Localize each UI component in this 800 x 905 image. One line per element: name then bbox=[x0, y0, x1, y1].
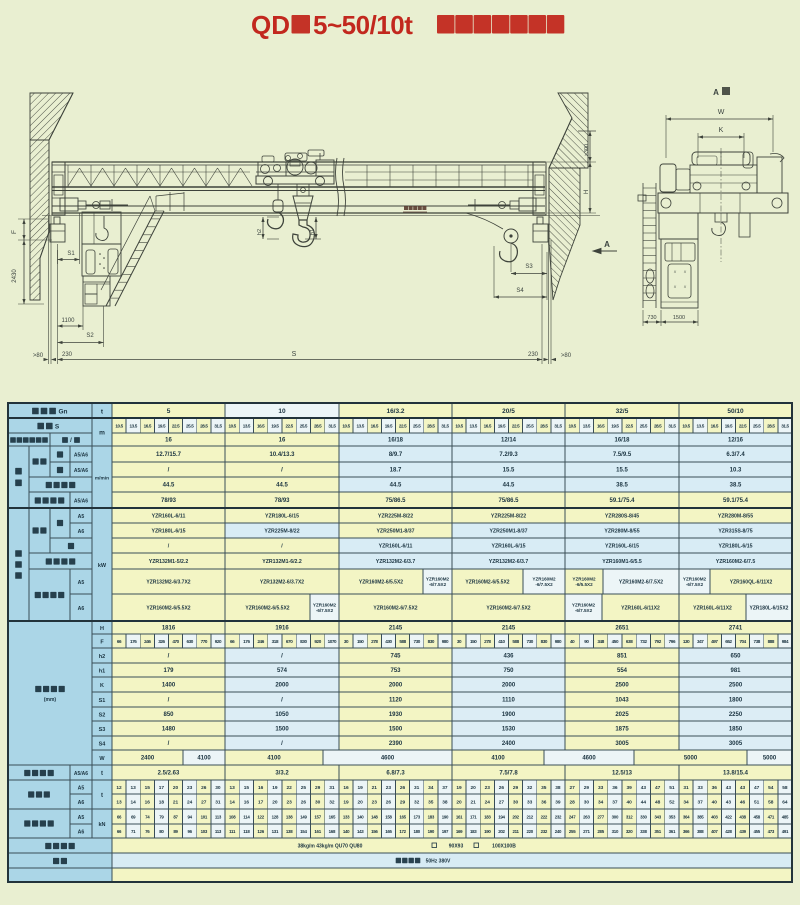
svg-text:172: 172 bbox=[399, 829, 406, 834]
svg-text:19.5: 19.5 bbox=[611, 424, 619, 429]
svg-text:2500: 2500 bbox=[615, 683, 629, 689]
svg-text:588: 588 bbox=[399, 639, 406, 644]
svg-text:58: 58 bbox=[768, 800, 774, 806]
svg-text:22.5: 22.5 bbox=[625, 424, 633, 429]
svg-text:131: 131 bbox=[272, 829, 279, 834]
svg-text:1500: 1500 bbox=[275, 727, 289, 733]
svg-text:118: 118 bbox=[243, 829, 250, 834]
svg-text:44.5: 44.5 bbox=[390, 483, 402, 489]
svg-text:138: 138 bbox=[286, 829, 293, 834]
svg-text:YZR280M-8/55: YZR280M-8/55 bbox=[604, 528, 639, 534]
svg-text:20: 20 bbox=[272, 800, 278, 806]
svg-text:738: 738 bbox=[753, 639, 760, 644]
svg-text:183: 183 bbox=[470, 829, 477, 834]
svg-text:-6/7.5X2: -6/7.5X2 bbox=[535, 582, 553, 587]
svg-text:27: 27 bbox=[499, 800, 505, 806]
svg-text:h2: h2 bbox=[257, 229, 263, 235]
svg-text:745: 745 bbox=[390, 654, 401, 660]
svg-text:100X100B: 100X100B bbox=[492, 844, 516, 850]
svg-text:122: 122 bbox=[257, 815, 264, 820]
svg-text:26: 26 bbox=[386, 800, 392, 806]
svg-text:183: 183 bbox=[484, 815, 491, 820]
svg-text:2390: 2390 bbox=[389, 741, 403, 747]
svg-text:44.5: 44.5 bbox=[163, 483, 175, 489]
svg-text:17: 17 bbox=[159, 785, 165, 791]
svg-text:7.5/9.5: 7.5/9.5 bbox=[613, 452, 632, 458]
svg-text:348: 348 bbox=[597, 639, 604, 644]
svg-text:31.5: 31.5 bbox=[441, 424, 449, 429]
svg-text:165: 165 bbox=[399, 815, 406, 820]
svg-text:YZR132M1-6/2.2: YZR132M1-6/2.2 bbox=[262, 559, 302, 565]
svg-text:113: 113 bbox=[215, 815, 222, 820]
svg-text:1043: 1043 bbox=[615, 698, 629, 704]
svg-text:326: 326 bbox=[158, 639, 165, 644]
svg-text:48: 48 bbox=[655, 800, 661, 806]
svg-text:25.5: 25.5 bbox=[300, 424, 308, 429]
svg-text:16.5: 16.5 bbox=[597, 424, 605, 429]
svg-text:21: 21 bbox=[173, 800, 179, 806]
svg-text:154: 154 bbox=[300, 829, 307, 834]
svg-text:59.1/75.4: 59.1/75.4 bbox=[723, 498, 749, 504]
svg-text:19: 19 bbox=[358, 785, 364, 791]
svg-text:30: 30 bbox=[315, 800, 321, 806]
svg-text:320: 320 bbox=[626, 829, 633, 834]
svg-text:7.5/7.8: 7.5/7.8 bbox=[499, 771, 518, 777]
svg-text:168: 168 bbox=[329, 829, 336, 834]
svg-text:16: 16 bbox=[165, 438, 172, 444]
svg-text:16: 16 bbox=[279, 438, 286, 444]
svg-text:25.5: 25.5 bbox=[753, 424, 761, 429]
svg-text:1070: 1070 bbox=[328, 639, 337, 644]
svg-text:32: 32 bbox=[414, 800, 420, 806]
svg-text:36: 36 bbox=[712, 785, 718, 791]
svg-text:202: 202 bbox=[498, 829, 505, 834]
svg-text:YZR160M2-6/7.5X2: YZR160M2-6/7.5X2 bbox=[619, 579, 663, 585]
svg-text:246: 246 bbox=[257, 639, 264, 644]
svg-text:232: 232 bbox=[555, 815, 562, 820]
svg-text:31.5: 31.5 bbox=[214, 424, 222, 429]
svg-text:A6: A6 bbox=[78, 800, 85, 806]
svg-text:A6: A6 bbox=[78, 606, 85, 612]
svg-text:7.2/9.3: 7.2/9.3 bbox=[499, 452, 518, 458]
svg-text:16.5: 16.5 bbox=[711, 424, 719, 429]
svg-text:1100: 1100 bbox=[62, 318, 76, 324]
svg-text:YZR160M2: YZR160M2 bbox=[572, 603, 596, 608]
svg-text:750: 750 bbox=[503, 668, 514, 674]
svg-text:1900: 1900 bbox=[502, 712, 516, 718]
svg-text:A5/A6: A5/A6 bbox=[74, 499, 88, 505]
svg-text:202: 202 bbox=[512, 815, 519, 820]
svg-text:31: 31 bbox=[414, 785, 420, 791]
svg-text:A5/A6: A5/A6 bbox=[74, 453, 88, 459]
svg-text:28.5: 28.5 bbox=[314, 424, 322, 429]
svg-text:351: 351 bbox=[654, 829, 661, 834]
svg-text:796: 796 bbox=[669, 639, 676, 644]
svg-text:S1: S1 bbox=[67, 251, 75, 257]
svg-text:19.5: 19.5 bbox=[158, 424, 166, 429]
svg-text:YZR225M-8/22: YZR225M-8/22 bbox=[264, 528, 299, 534]
svg-text:574: 574 bbox=[277, 668, 288, 674]
svg-text:730: 730 bbox=[526, 639, 533, 644]
svg-text:1400: 1400 bbox=[162, 683, 176, 689]
svg-text:1480: 1480 bbox=[162, 727, 176, 733]
svg-text:YZR160M1-6/5.5: YZR160M1-6/5.5 bbox=[602, 559, 642, 565]
svg-text:148: 148 bbox=[371, 815, 378, 820]
svg-text:m: m bbox=[99, 430, 105, 437]
svg-text:8/9.7: 8/9.7 bbox=[389, 452, 403, 458]
svg-text:K: K bbox=[719, 127, 724, 134]
svg-text:1916: 1916 bbox=[275, 626, 289, 632]
svg-text:103: 103 bbox=[201, 829, 208, 834]
svg-text:6.8/7.3: 6.8/7.3 bbox=[386, 771, 405, 777]
svg-text:173: 173 bbox=[413, 815, 420, 820]
svg-text:22.5: 22.5 bbox=[512, 424, 520, 429]
svg-text:S2: S2 bbox=[86, 333, 94, 339]
svg-text:16.5: 16.5 bbox=[371, 424, 379, 429]
svg-text:19.5: 19.5 bbox=[385, 424, 393, 429]
svg-text:31.5: 31.5 bbox=[781, 424, 789, 429]
svg-text:30: 30 bbox=[513, 800, 519, 806]
svg-text:YZR160M2: YZR160M2 bbox=[313, 603, 337, 608]
svg-text:33: 33 bbox=[698, 785, 704, 791]
svg-text:1120: 1120 bbox=[389, 698, 403, 704]
svg-text:23: 23 bbox=[485, 785, 491, 791]
svg-text:-6/7.5X2: -6/7.5X2 bbox=[429, 582, 447, 587]
svg-text:1500: 1500 bbox=[389, 727, 403, 733]
svg-text:YZR132M2-6/3.7: YZR132M2-6/3.7 bbox=[376, 559, 416, 565]
svg-text:108: 108 bbox=[229, 815, 236, 820]
svg-text:176: 176 bbox=[243, 639, 250, 644]
svg-text:16.5: 16.5 bbox=[144, 424, 152, 429]
svg-text:-6/7.5X2: -6/7.5X2 bbox=[575, 608, 593, 613]
svg-text:158: 158 bbox=[385, 815, 392, 820]
svg-text:A5/A6: A5/A6 bbox=[74, 771, 88, 777]
svg-text:19: 19 bbox=[343, 800, 349, 806]
svg-text:16/18: 16/18 bbox=[614, 438, 630, 444]
svg-text:22.5: 22.5 bbox=[399, 424, 407, 429]
svg-text:28: 28 bbox=[569, 800, 575, 806]
svg-text:kW: kW bbox=[98, 563, 107, 569]
svg-text:YZR225M-8/22: YZR225M-8/22 bbox=[491, 513, 526, 519]
svg-text:770: 770 bbox=[201, 639, 208, 644]
svg-text:10.5: 10.5 bbox=[342, 424, 350, 429]
svg-text:920: 920 bbox=[215, 639, 222, 644]
svg-text:31.5: 31.5 bbox=[668, 424, 676, 429]
svg-text:14: 14 bbox=[229, 800, 235, 806]
svg-text:10.4/13.3: 10.4/13.3 bbox=[269, 452, 295, 458]
svg-text:YZR160M2-6/7.5: YZR160M2-6/7.5 bbox=[716, 559, 756, 565]
svg-text:29: 29 bbox=[400, 800, 406, 806]
svg-text:25.5: 25.5 bbox=[413, 424, 421, 429]
svg-text:43: 43 bbox=[740, 785, 746, 791]
svg-text:34: 34 bbox=[598, 800, 604, 806]
svg-text:2025: 2025 bbox=[615, 712, 629, 718]
svg-text:43: 43 bbox=[641, 785, 647, 791]
svg-text:47: 47 bbox=[655, 785, 661, 791]
svg-text:31: 31 bbox=[215, 800, 221, 806]
svg-text:20/5: 20/5 bbox=[502, 408, 515, 415]
svg-text:38.5: 38.5 bbox=[616, 483, 628, 489]
svg-text:QD: QD bbox=[251, 10, 290, 40]
svg-text:114: 114 bbox=[243, 815, 250, 820]
svg-text:A6: A6 bbox=[78, 529, 85, 535]
svg-text:31.5: 31.5 bbox=[328, 424, 336, 429]
svg-text:≥300: ≥300 bbox=[584, 144, 590, 156]
svg-text:220: 220 bbox=[526, 829, 533, 834]
svg-text:130: 130 bbox=[683, 639, 690, 644]
svg-text:10.5: 10.5 bbox=[115, 424, 123, 429]
svg-text:16: 16 bbox=[145, 800, 151, 806]
svg-text:4100: 4100 bbox=[197, 756, 211, 762]
svg-text:YZR160M2: YZR160M2 bbox=[532, 577, 556, 582]
svg-text:5~50/10t: 5~50/10t bbox=[313, 10, 413, 40]
svg-text:730: 730 bbox=[647, 315, 656, 321]
svg-text:111: 111 bbox=[229, 829, 236, 834]
svg-text:YZR132M2-6/3.7X2: YZR132M2-6/3.7X2 bbox=[260, 579, 304, 585]
svg-text:13.5: 13.5 bbox=[697, 424, 705, 429]
svg-text:YZR225M-8/22: YZR225M-8/22 bbox=[378, 513, 413, 519]
svg-text:YZR160M2-6/7.5X2: YZR160M2-6/7.5X2 bbox=[373, 605, 417, 611]
svg-text:353: 353 bbox=[669, 815, 676, 820]
svg-text:26: 26 bbox=[301, 800, 307, 806]
svg-text:4600: 4600 bbox=[381, 756, 395, 762]
svg-text:22.5: 22.5 bbox=[739, 424, 747, 429]
svg-text:YZR132M1-5/2.2: YZR132M1-5/2.2 bbox=[149, 559, 189, 565]
svg-text:40: 40 bbox=[626, 800, 632, 806]
svg-text:3/3.2: 3/3.2 bbox=[275, 771, 289, 777]
svg-text:2400: 2400 bbox=[502, 741, 516, 747]
svg-text:35: 35 bbox=[428, 800, 434, 806]
svg-text:>80: >80 bbox=[33, 353, 44, 359]
svg-text:211: 211 bbox=[512, 829, 519, 834]
svg-text:2000: 2000 bbox=[275, 683, 289, 689]
svg-text:10.5: 10.5 bbox=[682, 424, 690, 429]
svg-text:388: 388 bbox=[697, 829, 704, 834]
svg-text:190: 190 bbox=[442, 815, 449, 820]
svg-text:18.7: 18.7 bbox=[390, 468, 402, 474]
svg-text:16.5: 16.5 bbox=[257, 424, 265, 429]
svg-text:13.5: 13.5 bbox=[357, 424, 365, 429]
svg-text:YZR160M2-6/7.5X2: YZR160M2-6/7.5X2 bbox=[486, 605, 530, 611]
svg-text:kN: kN bbox=[98, 822, 105, 828]
svg-text:A5/A6: A5/A6 bbox=[74, 468, 88, 474]
svg-text:171: 171 bbox=[470, 815, 477, 820]
svg-text:161: 161 bbox=[456, 815, 463, 820]
svg-text:23: 23 bbox=[286, 800, 292, 806]
svg-text:157: 157 bbox=[314, 815, 321, 820]
svg-text:113: 113 bbox=[215, 829, 222, 834]
svg-text:16.5: 16.5 bbox=[484, 424, 492, 429]
svg-text:156: 156 bbox=[371, 829, 378, 834]
svg-text:S3: S3 bbox=[99, 727, 106, 733]
svg-text:A6: A6 bbox=[78, 829, 85, 835]
svg-text:33: 33 bbox=[527, 800, 533, 806]
svg-text:52: 52 bbox=[669, 800, 675, 806]
svg-text:15.5: 15.5 bbox=[503, 468, 515, 474]
svg-text:285: 285 bbox=[597, 829, 604, 834]
svg-text:50Hz 380V: 50Hz 380V bbox=[426, 859, 451, 865]
svg-text:16/18: 16/18 bbox=[388, 438, 404, 444]
svg-text:YZR180L-6/15: YZR180L-6/15 bbox=[718, 543, 752, 549]
svg-text:980: 980 bbox=[442, 639, 449, 644]
svg-text:101: 101 bbox=[201, 815, 208, 820]
svg-text:26: 26 bbox=[400, 785, 406, 791]
svg-text:37: 37 bbox=[442, 785, 448, 791]
svg-text:165: 165 bbox=[385, 829, 392, 834]
svg-text:31: 31 bbox=[329, 785, 335, 791]
svg-text:888: 888 bbox=[768, 639, 775, 644]
svg-text:22: 22 bbox=[286, 785, 292, 791]
svg-text:25.5: 25.5 bbox=[186, 424, 194, 429]
svg-text:473: 473 bbox=[768, 829, 775, 834]
svg-text:312: 312 bbox=[626, 815, 633, 820]
svg-text:t: t bbox=[101, 793, 103, 799]
svg-text:28.5: 28.5 bbox=[654, 424, 662, 429]
svg-text:36: 36 bbox=[612, 785, 618, 791]
svg-text:366: 366 bbox=[683, 829, 690, 834]
svg-text:44: 44 bbox=[641, 800, 647, 806]
svg-text:190: 190 bbox=[428, 829, 435, 834]
svg-text:1850: 1850 bbox=[729, 727, 743, 733]
svg-text:16: 16 bbox=[343, 785, 349, 791]
svg-text:23: 23 bbox=[372, 800, 378, 806]
svg-text:1930: 1930 bbox=[389, 712, 403, 718]
svg-text:YZR132M2-6/3.7: YZR132M2-6/3.7 bbox=[489, 559, 529, 565]
svg-text:230: 230 bbox=[62, 352, 73, 358]
svg-text:W: W bbox=[718, 109, 725, 116]
svg-text:28.5: 28.5 bbox=[427, 424, 435, 429]
svg-text:150: 150 bbox=[357, 639, 364, 644]
svg-text:19.5: 19.5 bbox=[271, 424, 279, 429]
svg-text:403: 403 bbox=[711, 815, 718, 820]
svg-text:179: 179 bbox=[163, 668, 174, 674]
svg-text:26: 26 bbox=[499, 785, 505, 791]
svg-text:410: 410 bbox=[498, 639, 505, 644]
svg-text:S: S bbox=[55, 424, 60, 431]
svg-text:YZR160L-6/11: YZR160L-6/11 bbox=[152, 513, 186, 519]
svg-text:15: 15 bbox=[244, 785, 250, 791]
svg-text:830: 830 bbox=[428, 639, 435, 644]
svg-text:12/14: 12/14 bbox=[501, 438, 517, 444]
svg-text:h1: h1 bbox=[99, 668, 105, 674]
svg-text:753: 753 bbox=[390, 668, 401, 674]
svg-text:133: 133 bbox=[343, 815, 350, 820]
svg-text:23: 23 bbox=[187, 785, 193, 791]
svg-text:2400: 2400 bbox=[141, 756, 155, 762]
svg-text:31: 31 bbox=[683, 785, 689, 791]
svg-text:S2: S2 bbox=[99, 712, 106, 718]
svg-text:50/10: 50/10 bbox=[727, 408, 744, 415]
svg-text:S1: S1 bbox=[99, 698, 106, 704]
svg-text:59.1/75.4: 59.1/75.4 bbox=[609, 498, 635, 504]
svg-text:F: F bbox=[11, 230, 18, 234]
svg-text:22.5: 22.5 bbox=[172, 424, 180, 429]
svg-text:S4: S4 bbox=[516, 288, 524, 294]
svg-text:2500: 2500 bbox=[729, 683, 743, 689]
svg-text:2000: 2000 bbox=[389, 683, 403, 689]
svg-text:24: 24 bbox=[187, 800, 193, 806]
svg-text:1500: 1500 bbox=[673, 315, 685, 321]
svg-text:428: 428 bbox=[725, 829, 732, 834]
svg-text:YZR160M2: YZR160M2 bbox=[572, 577, 596, 582]
svg-text:51: 51 bbox=[754, 800, 760, 806]
svg-text:26: 26 bbox=[201, 785, 207, 791]
svg-text:2651: 2651 bbox=[615, 626, 629, 632]
svg-text:YZR315S-8/75: YZR315S-8/75 bbox=[718, 528, 752, 534]
svg-text:29: 29 bbox=[584, 785, 590, 791]
svg-text:455: 455 bbox=[753, 829, 760, 834]
svg-text:A5: A5 bbox=[78, 514, 85, 520]
svg-text:19.5: 19.5 bbox=[725, 424, 733, 429]
svg-text:732: 732 bbox=[640, 639, 647, 644]
svg-text:44.5: 44.5 bbox=[503, 483, 515, 489]
svg-text:138: 138 bbox=[286, 815, 293, 820]
svg-text:29: 29 bbox=[513, 785, 519, 791]
svg-text:12/16: 12/16 bbox=[728, 438, 744, 444]
svg-text:43: 43 bbox=[726, 800, 732, 806]
svg-text:169: 169 bbox=[456, 829, 463, 834]
svg-text:YZR250M1-8/37: YZR250M1-8/37 bbox=[376, 528, 414, 534]
svg-text:20: 20 bbox=[471, 785, 477, 791]
svg-text:338: 338 bbox=[640, 829, 647, 834]
svg-text:28.5: 28.5 bbox=[540, 424, 548, 429]
svg-text:361: 361 bbox=[669, 829, 676, 834]
svg-text:232: 232 bbox=[541, 829, 548, 834]
svg-text:650: 650 bbox=[730, 654, 741, 660]
svg-text:W: W bbox=[99, 756, 105, 762]
svg-text:12.7/15.7: 12.7/15.7 bbox=[156, 452, 182, 458]
svg-text:75/86.5: 75/86.5 bbox=[385, 498, 406, 504]
svg-text:-6/5.5X2: -6/5.5X2 bbox=[575, 582, 593, 587]
svg-text:78/93: 78/93 bbox=[161, 498, 177, 504]
svg-text:984: 984 bbox=[782, 639, 789, 644]
svg-text:25.5: 25.5 bbox=[640, 424, 648, 429]
svg-text:H: H bbox=[584, 190, 590, 194]
svg-text:2000: 2000 bbox=[502, 683, 516, 689]
svg-text:485: 485 bbox=[782, 815, 789, 820]
svg-text:h1: h1 bbox=[310, 229, 316, 235]
svg-text:2145: 2145 bbox=[389, 626, 403, 632]
svg-text:13: 13 bbox=[229, 785, 235, 791]
svg-text:10.5: 10.5 bbox=[228, 424, 236, 429]
svg-text:194: 194 bbox=[498, 815, 505, 820]
svg-text:34: 34 bbox=[428, 785, 434, 791]
svg-text:15.5: 15.5 bbox=[616, 468, 628, 474]
svg-text:704: 704 bbox=[739, 639, 746, 644]
svg-text:422: 422 bbox=[725, 815, 732, 820]
svg-text:38: 38 bbox=[442, 800, 448, 806]
svg-text:33: 33 bbox=[598, 785, 604, 791]
svg-text:>80: >80 bbox=[561, 353, 572, 359]
svg-text:A: A bbox=[713, 88, 719, 97]
svg-text:YZR160M2-6/5.5X2: YZR160M2-6/5.5X2 bbox=[146, 605, 190, 611]
svg-text:15: 15 bbox=[145, 785, 151, 791]
svg-text:830: 830 bbox=[541, 639, 548, 644]
svg-text:20: 20 bbox=[456, 800, 462, 806]
svg-text:20: 20 bbox=[358, 800, 364, 806]
svg-text:3005: 3005 bbox=[615, 741, 629, 747]
svg-text:25.5: 25.5 bbox=[526, 424, 534, 429]
svg-text:183: 183 bbox=[428, 815, 435, 820]
svg-text:13.5: 13.5 bbox=[583, 424, 591, 429]
svg-text:YZR280S-8/45: YZR280S-8/45 bbox=[605, 513, 639, 519]
svg-text:5000: 5000 bbox=[684, 756, 698, 762]
svg-text:19.5: 19.5 bbox=[498, 424, 506, 429]
svg-text:14: 14 bbox=[131, 800, 137, 806]
svg-text:YZR160M2-6/5.5X2: YZR160M2-6/5.5X2 bbox=[359, 579, 403, 585]
svg-text:588: 588 bbox=[512, 639, 519, 644]
svg-text:1110: 1110 bbox=[502, 698, 515, 704]
